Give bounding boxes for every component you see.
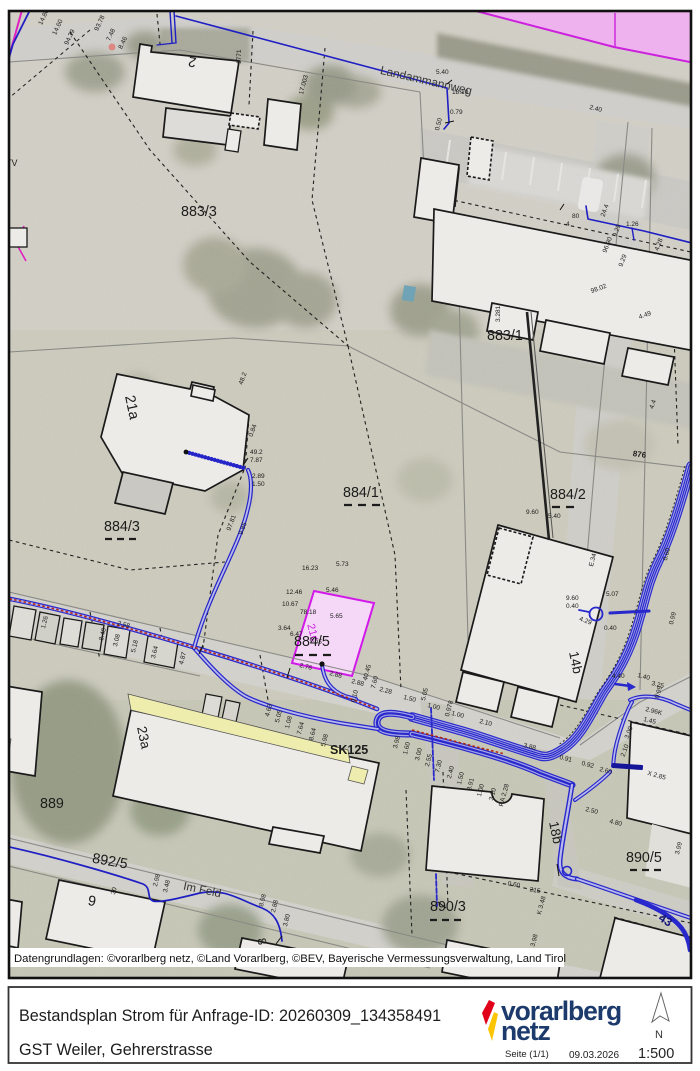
svg-text:3.281: 3.281 — [495, 305, 502, 322]
svg-text:5.73: 5.73 — [336, 561, 349, 568]
svg-text:7.87: 7.87 — [250, 457, 263, 464]
svg-text:N: N — [655, 1029, 663, 1041]
svg-text:78.18: 78.18 — [300, 609, 317, 616]
svg-text:4: 4 — [566, 221, 570, 228]
svg-text:0.79: 0.79 — [450, 109, 463, 116]
svg-text:Datengrundlagen: ©vorarlberg n: Datengrundlagen: ©vorarlberg netz, ©Land… — [14, 953, 566, 965]
svg-text:884/2: 884/2 — [550, 487, 586, 503]
svg-text:49.2: 49.2 — [250, 449, 263, 456]
svg-text:5.65: 5.65 — [330, 613, 343, 620]
svg-text:10.67: 10.67 — [282, 601, 299, 608]
svg-text:0.40: 0.40 — [566, 603, 579, 610]
svg-text:GST Weiler, Gehrerstrasse: GST Weiler, Gehrerstrasse — [19, 1041, 213, 1059]
svg-text:5.40: 5.40 — [436, 69, 449, 76]
svg-text:09.03.2026: 09.03.2026 — [569, 1050, 619, 1061]
svg-text:18.10: 18.10 — [452, 89, 469, 96]
svg-text:12.46: 12.46 — [286, 589, 303, 596]
svg-text:1:500: 1:500 — [638, 1046, 674, 1062]
svg-text:9.60: 9.60 — [566, 595, 579, 602]
svg-text:9.60: 9.60 — [526, 509, 539, 516]
svg-text:876: 876 — [632, 449, 647, 460]
svg-text:5.07: 5.07 — [606, 591, 619, 598]
svg-text:SK125: SK125 — [330, 743, 368, 757]
svg-text:883/1: 883/1 — [487, 328, 523, 344]
svg-text:884/1: 884/1 — [343, 485, 379, 501]
svg-text:889: 889 — [40, 796, 64, 812]
svg-text:netz: netz — [501, 1016, 550, 1046]
svg-text:0.40: 0.40 — [604, 625, 617, 632]
svg-text:890/3: 890/3 — [430, 899, 466, 915]
svg-text:Bestandsplan Strom für Anfrage: Bestandsplan Strom für Anfrage-ID: 20260… — [19, 1007, 441, 1025]
svg-text:5.46: 5.46 — [326, 587, 339, 594]
svg-text:1771: 1771 — [236, 49, 243, 64]
svg-text:1.26: 1.26 — [626, 221, 639, 228]
svg-text:16.23: 16.23 — [302, 565, 319, 572]
svg-text:884/3: 884/3 — [104, 519, 140, 535]
svg-text:1.50: 1.50 — [252, 481, 265, 488]
svg-text:80: 80 — [572, 213, 580, 220]
svg-text:890/5: 890/5 — [626, 850, 662, 866]
svg-text:2.89: 2.89 — [252, 473, 265, 480]
svg-text:4.40: 4.40 — [612, 673, 625, 680]
svg-text:6.47: 6.47 — [290, 631, 303, 638]
svg-text:Seite (1/1): Seite (1/1) — [505, 1049, 549, 1060]
svg-text:5.40: 5.40 — [548, 513, 561, 520]
svg-text:883/3: 883/3 — [181, 204, 217, 220]
